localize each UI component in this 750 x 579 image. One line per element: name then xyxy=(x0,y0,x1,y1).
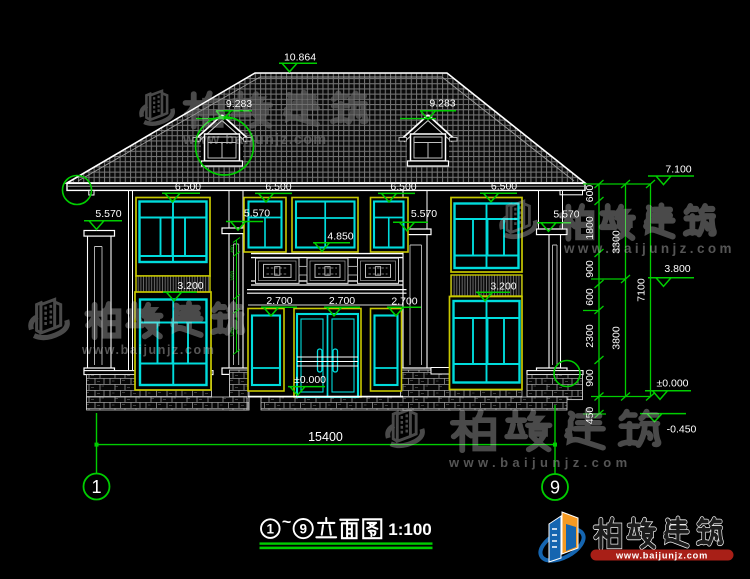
svg-text:±0.000: ±0.000 xyxy=(294,374,326,386)
svg-text:www.baijunjz.com: www.baijunjz.com xyxy=(182,132,327,148)
svg-text:www.baijunjz.com: www.baijunjz.com xyxy=(563,241,735,256)
svg-text:900: 900 xyxy=(584,369,596,387)
svg-text:9: 9 xyxy=(550,478,560,498)
svg-text:5.570: 5.570 xyxy=(411,208,437,220)
svg-text:-0.450: -0.450 xyxy=(667,424,697,436)
svg-text:www.baijunjz.com: www.baijunjz.com xyxy=(81,343,215,357)
svg-text:6.500: 6.500 xyxy=(491,181,517,193)
svg-text:2.700: 2.700 xyxy=(391,296,417,308)
svg-text:3.800: 3.800 xyxy=(664,263,690,275)
svg-text:4.850: 4.850 xyxy=(327,231,353,243)
svg-text:3.200: 3.200 xyxy=(490,281,516,293)
svg-text:5.570: 5.570 xyxy=(244,208,270,220)
svg-text:7100: 7100 xyxy=(636,278,648,302)
svg-text:7.100: 7.100 xyxy=(665,164,691,176)
svg-text:600: 600 xyxy=(584,185,596,203)
svg-text:9.283: 9.283 xyxy=(429,98,455,110)
svg-text:15400: 15400 xyxy=(308,430,343,444)
svg-text:1650: 1650 xyxy=(230,270,235,281)
svg-text:www.baijunjz.com: www.baijunjz.com xyxy=(448,455,632,470)
svg-text:6.500: 6.500 xyxy=(265,181,291,193)
svg-text:3800: 3800 xyxy=(611,326,623,350)
svg-text:~: ~ xyxy=(282,514,291,531)
svg-text:10.864: 10.864 xyxy=(284,52,316,64)
svg-text:9: 9 xyxy=(299,522,307,537)
svg-text:600: 600 xyxy=(584,288,596,306)
svg-text:±0.000: ±0.000 xyxy=(656,378,688,390)
svg-text:1: 1 xyxy=(267,522,275,537)
svg-text:3.200: 3.200 xyxy=(177,280,203,292)
svg-text:400: 400 xyxy=(230,245,235,253)
svg-text:2300: 2300 xyxy=(584,324,596,348)
svg-text:1:100: 1:100 xyxy=(388,520,431,539)
svg-text:1: 1 xyxy=(91,477,101,497)
svg-text:2.700: 2.700 xyxy=(266,295,292,307)
svg-text:6.500: 6.500 xyxy=(390,181,416,193)
svg-text:www.baijunjz.com: www.baijunjz.com xyxy=(615,551,708,561)
svg-text:900: 900 xyxy=(584,260,596,278)
svg-text:5.570: 5.570 xyxy=(95,208,121,220)
svg-text:6.500: 6.500 xyxy=(175,181,201,193)
svg-text:2.700: 2.700 xyxy=(329,295,355,307)
